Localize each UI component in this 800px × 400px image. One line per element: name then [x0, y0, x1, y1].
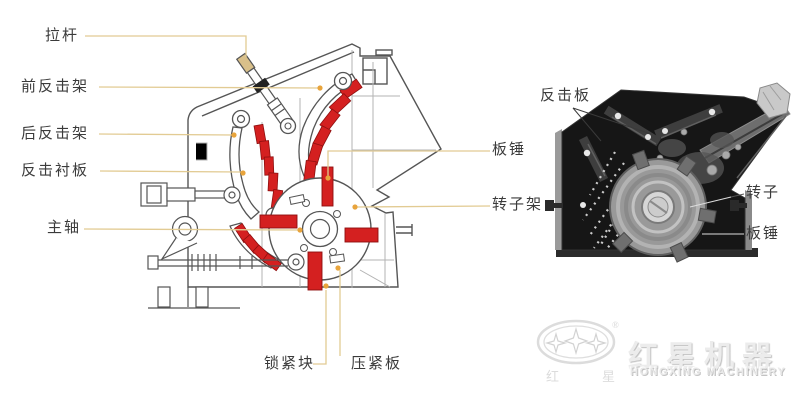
label-rotor-frame: 转子架 — [492, 197, 543, 214]
label-lock-block: 锁紧块 — [264, 356, 315, 373]
label-impact-liner-plate: 反击衬板 — [21, 163, 89, 180]
label-rear-impact-rack: 后反击架 — [21, 126, 89, 143]
label-front-impact-rack: 前反击架 — [21, 79, 89, 96]
label-impact-plate: 反击板 — [540, 88, 591, 105]
label-tie-rod: 拉杆 — [45, 28, 79, 45]
label-pressing-plate: 压紧板 — [351, 356, 402, 373]
label-rotor: 转子 — [746, 185, 780, 202]
label-main-shaft: 主轴 — [47, 220, 81, 237]
label-blow-bar: 板锤 — [492, 142, 526, 159]
label-blow-bar-photo: 板锤 — [746, 226, 780, 243]
hongxing-watermark-logo: ® 红 星 红星机器 HONGXING MACHINERY — [536, 318, 796, 392]
registered-mark: ® — [612, 320, 619, 330]
impact-crusher-diagram-page: 拉杆 前反击架 后反击架 反击衬板 主轴 锁紧块 压紧板 板锤 转子架 反击板 … — [0, 0, 800, 400]
emblem-char-xing: 星 — [602, 366, 615, 385]
hongxing-star-emblem-icon — [536, 318, 620, 368]
emblem-char-hong: 红 — [546, 366, 559, 385]
brand-name-english: HONGXING MACHINERY — [630, 366, 786, 378]
